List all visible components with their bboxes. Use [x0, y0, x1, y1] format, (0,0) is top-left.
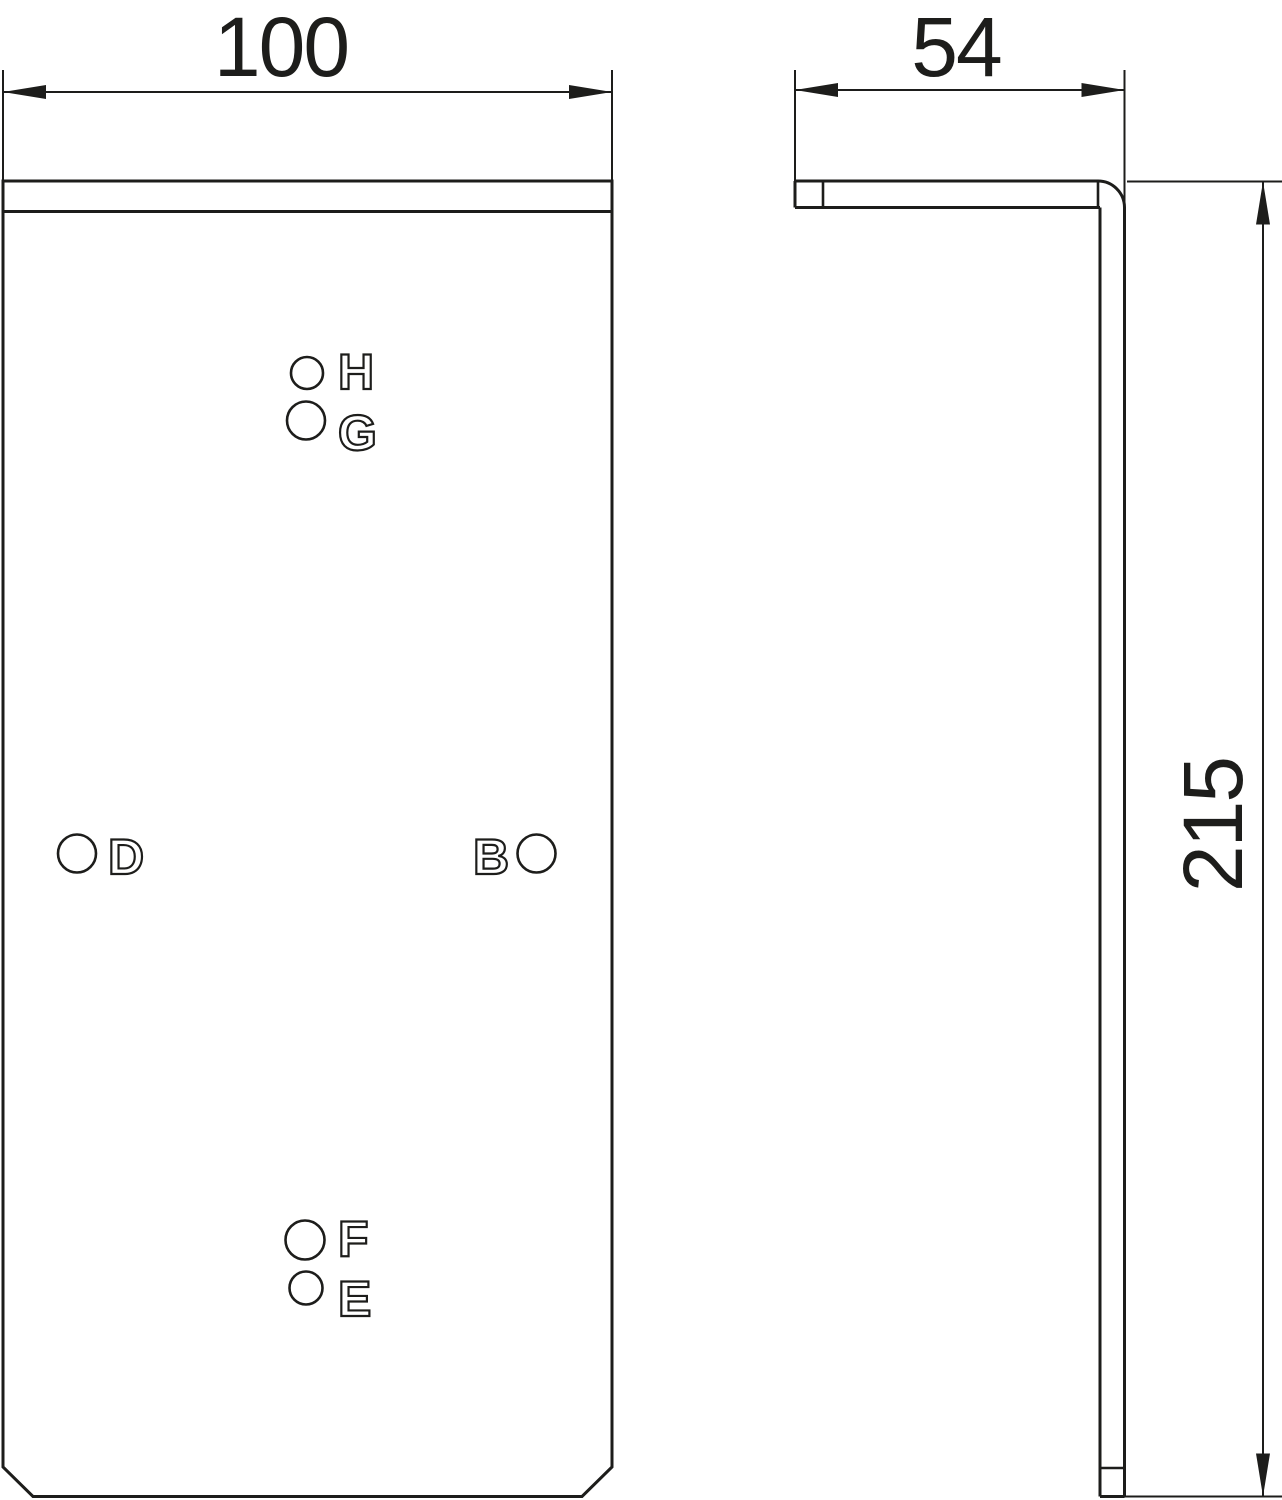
dimension-depth-arrow-left [795, 83, 838, 97]
hole-b [518, 835, 556, 873]
dimension-depth: 54 [795, 0, 1125, 207]
dimension-drawing: H G D B F E 100 [0, 0, 1282, 1500]
dimension-height-arrow-bottom [1256, 1454, 1270, 1497]
dimension-width-text: 100 [214, 0, 348, 94]
hole-f-label: F [338, 1211, 369, 1267]
dimension-depth-text: 54 [911, 0, 1001, 94]
dimension-height-arrow-top [1256, 182, 1270, 225]
dimension-width-arrow-left [3, 85, 46, 99]
hole-f [286, 1221, 325, 1260]
hole-d-label: D [108, 829, 144, 885]
hole-g [287, 402, 325, 440]
dimension-height: 215 [1125, 182, 1282, 1497]
hole-b-label: B [473, 829, 509, 885]
dimension-height-text: 215 [1166, 758, 1260, 892]
side-bend-outer-radius [1098, 181, 1125, 208]
technical-drawing-page: H G D B F E 100 [0, 0, 1282, 1500]
dimension-depth-arrow-right [1082, 83, 1125, 97]
hole-h-label: H [338, 344, 374, 400]
hole-e [290, 1272, 323, 1305]
hole-d [58, 835, 96, 873]
front-view: H G D B F E [3, 181, 612, 1497]
hole-e-label: E [338, 1271, 371, 1327]
dimension-width-arrow-right [569, 85, 612, 99]
front-view-outline [3, 181, 612, 1497]
dimension-width: 100 [3, 0, 612, 181]
hole-g-label: G [338, 405, 377, 461]
side-view [795, 181, 1125, 1497]
hole-h [291, 357, 323, 389]
